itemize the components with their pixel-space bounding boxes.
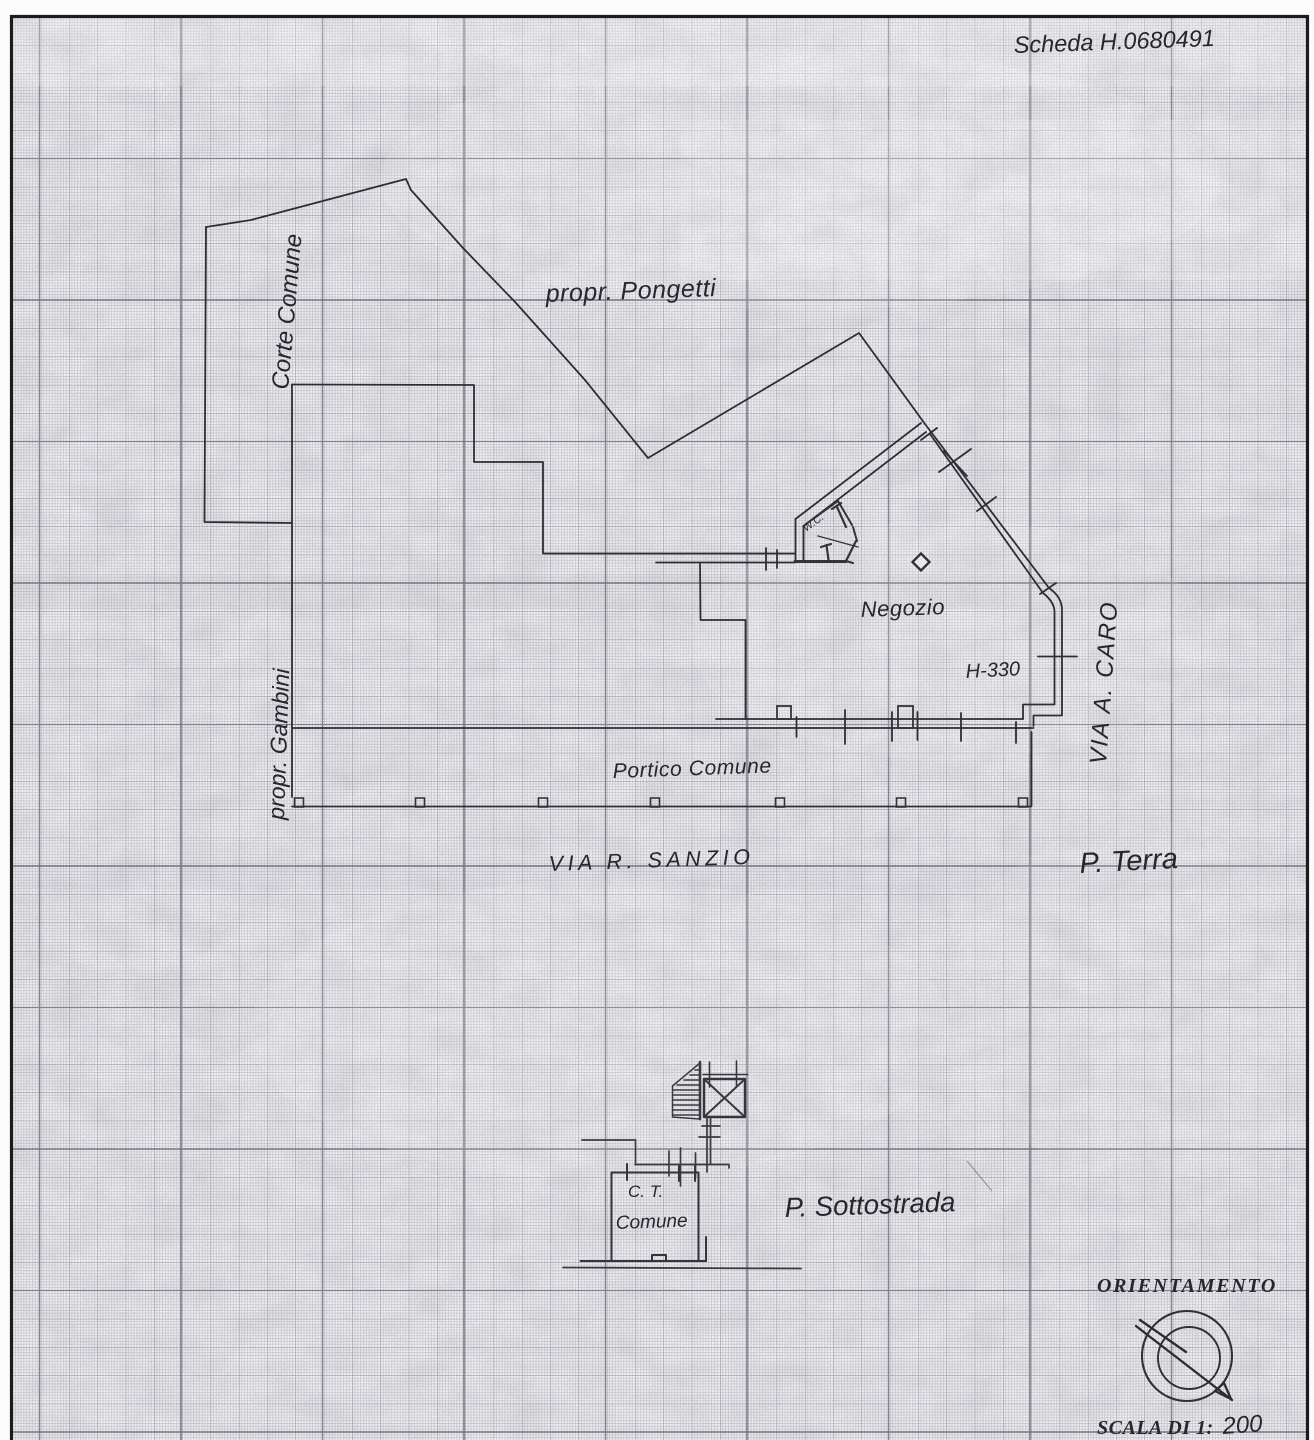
svg-text:SCALA DI 1:: SCALA DI 1: bbox=[1097, 1417, 1214, 1439]
svg-text:ORIENTAMENTO: ORIENTAMENTO bbox=[1097, 1275, 1277, 1297]
svg-text:C. T.: C. T. bbox=[628, 1182, 663, 1201]
svg-text:200: 200 bbox=[1221, 1410, 1264, 1440]
svg-text:Negozio: Negozio bbox=[860, 594, 945, 622]
svg-text:Comune: Comune bbox=[615, 1211, 688, 1234]
svg-text:P. Terra: P. Terra bbox=[1079, 843, 1179, 880]
svg-text:propr. Gambini: propr. Gambini bbox=[263, 667, 294, 821]
svg-text:P. Sottostrada: P. Sottostrada bbox=[784, 1186, 956, 1223]
svg-text:H-330: H-330 bbox=[965, 658, 1021, 683]
